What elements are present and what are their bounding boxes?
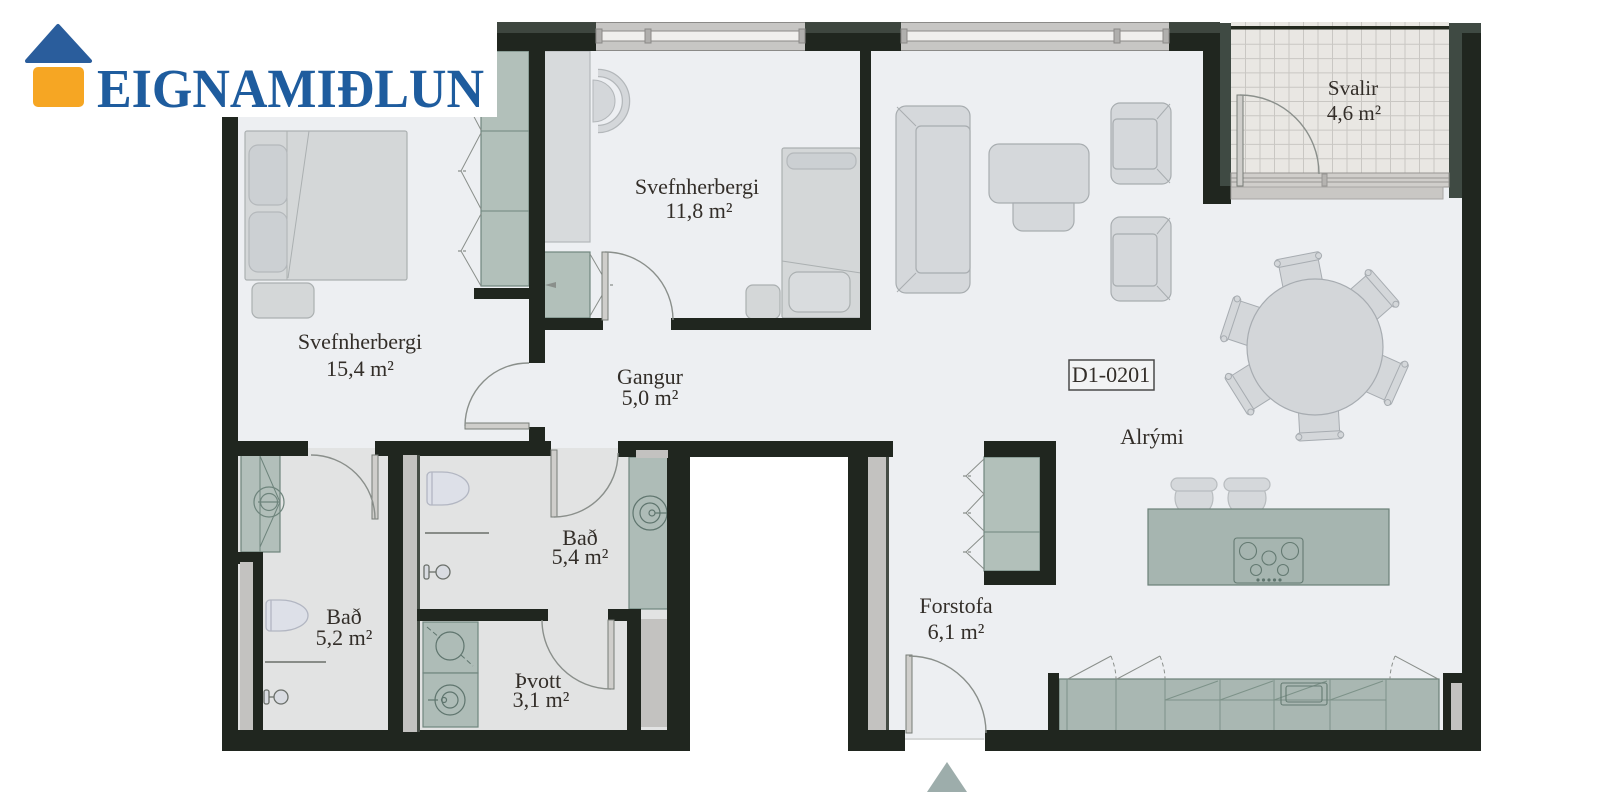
svg-text:11,8 m²: 11,8 m² <box>666 198 733 223</box>
svg-text:EIGNAMIÐLUN: EIGNAMIÐLUN <box>97 58 484 119</box>
svg-text:6,1 m²: 6,1 m² <box>928 619 985 644</box>
svg-text:5,2 m²: 5,2 m² <box>316 625 373 650</box>
svg-text:Svalir: Svalir <box>1328 76 1378 100</box>
svg-text:Svefnherbergi: Svefnherbergi <box>298 329 422 354</box>
svg-text:Svefnherbergi: Svefnherbergi <box>635 174 759 199</box>
svg-text:5,0 m²: 5,0 m² <box>622 385 679 410</box>
svg-text:D1-0201: D1-0201 <box>1072 362 1150 387</box>
svg-text:Forstofa: Forstofa <box>919 593 993 618</box>
svg-text:4,6 m²: 4,6 m² <box>1327 101 1381 125</box>
svg-text:15,4 m²: 15,4 m² <box>326 356 394 381</box>
svg-text:Alrými: Alrými <box>1120 424 1184 449</box>
svg-text:3,1 m²: 3,1 m² <box>513 687 570 712</box>
svg-text:5,4 m²: 5,4 m² <box>552 544 609 569</box>
